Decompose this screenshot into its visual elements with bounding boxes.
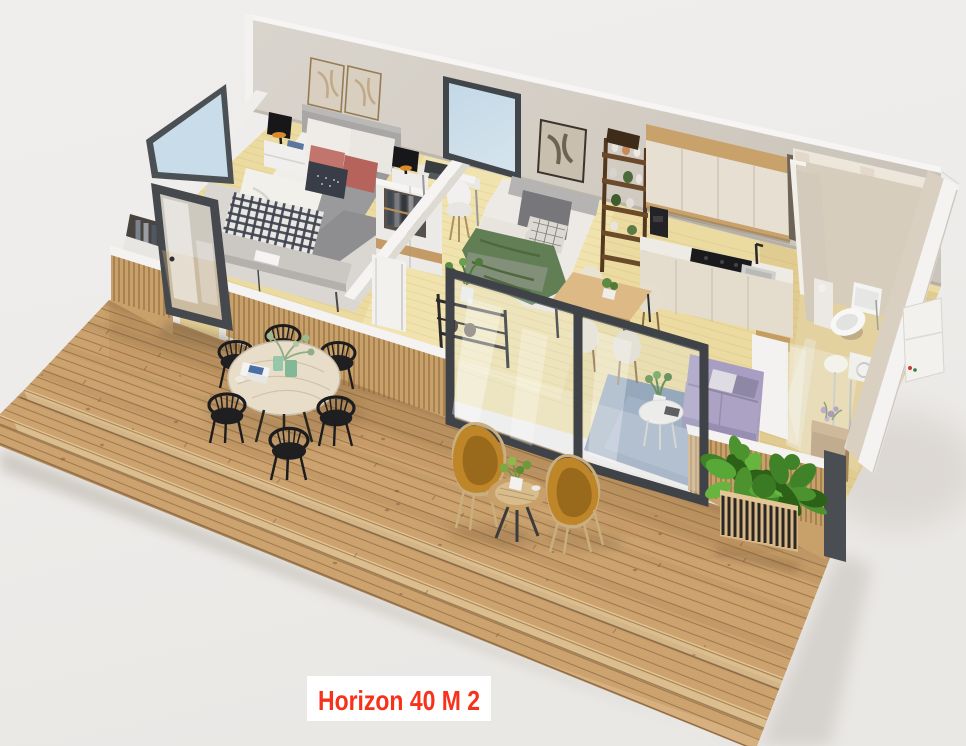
svg-text:Horizon 40 M 2: Horizon 40 M 2: [318, 685, 480, 716]
